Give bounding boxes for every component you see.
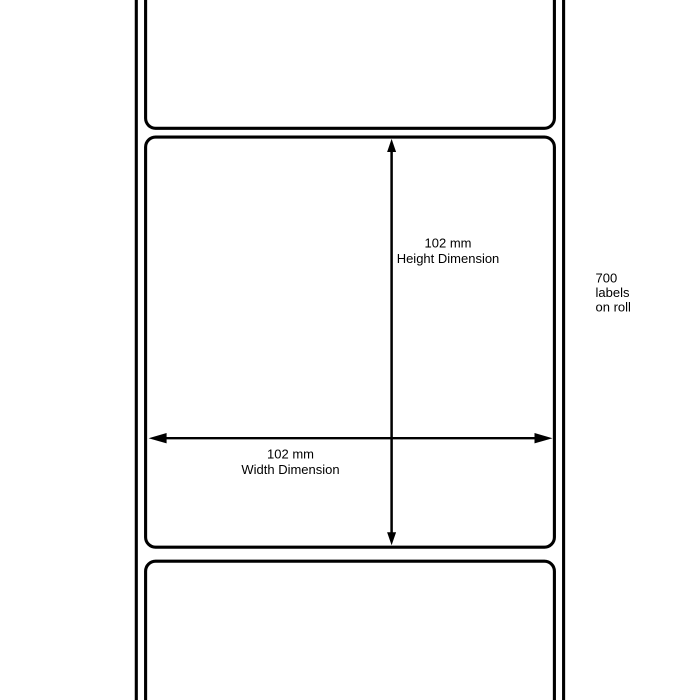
svg-text:102 mm: 102 mm (425, 236, 472, 251)
svg-text:700: 700 (596, 271, 618, 286)
svg-text:Height Dimension: Height Dimension (397, 251, 500, 266)
svg-text:Width Dimension: Width Dimension (241, 462, 339, 477)
svg-text:on roll: on roll (596, 300, 632, 315)
svg-text:labels: labels (596, 285, 630, 300)
svg-text:102 mm: 102 mm (267, 447, 314, 462)
